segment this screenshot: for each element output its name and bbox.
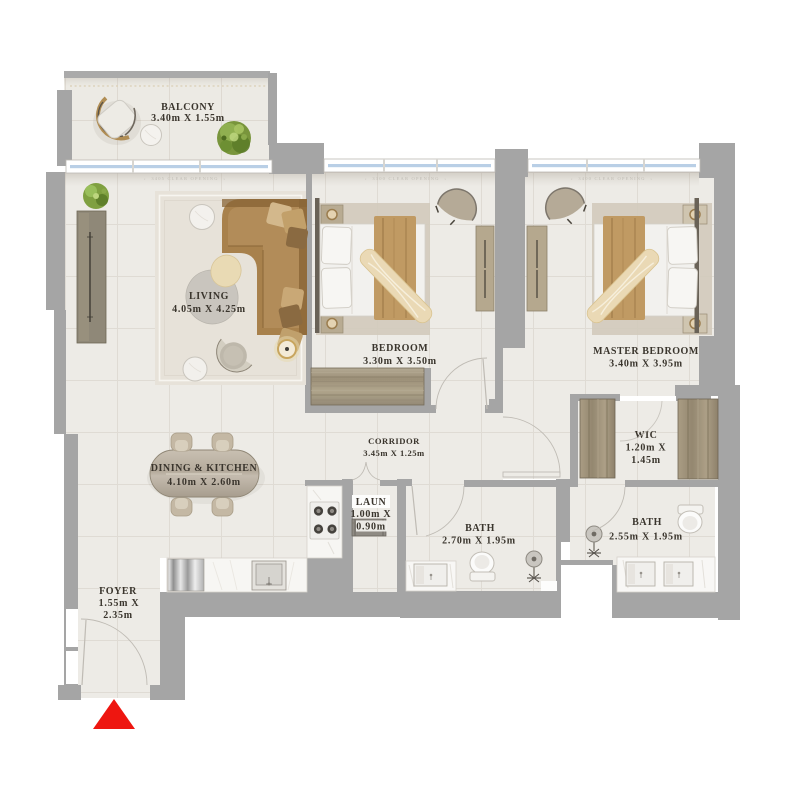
svg-text:BATH: BATH — [465, 523, 495, 534]
svg-text:BEDROOM: BEDROOM — [372, 343, 429, 354]
svg-text:CORRIDOR: CORRIDOR — [368, 436, 420, 446]
svg-text:2.70m X 1.95m: 2.70m X 1.95m — [442, 536, 516, 547]
svg-text:1.20m X: 1.20m X — [626, 443, 667, 454]
svg-text:4.10m X 2.60m: 4.10m X 2.60m — [167, 477, 241, 488]
svg-text:3.40m X 3.95m: 3.40m X 3.95m — [609, 359, 683, 370]
svg-text:‹ 3405 CLEAR OPENING ›: ‹ 3405 CLEAR OPENING › — [144, 176, 226, 181]
svg-text:LIVING: LIVING — [189, 291, 229, 302]
svg-text:MASTER BEDROOM: MASTER BEDROOM — [593, 346, 699, 357]
svg-text:FOYER: FOYER — [99, 586, 137, 597]
svg-text:2.55m X 1.95m: 2.55m X 1.95m — [609, 532, 683, 543]
svg-text:1.55m X: 1.55m X — [99, 598, 140, 609]
svg-text:BATH: BATH — [632, 517, 662, 528]
svg-text:‹ 3400 CLEAR OPENING ›: ‹ 3400 CLEAR OPENING › — [571, 176, 653, 181]
svg-text:1.00m X: 1.00m X — [351, 509, 392, 520]
svg-text:DINING & KITCHEN: DINING & KITCHEN — [151, 463, 258, 474]
svg-text:1.45m: 1.45m — [631, 455, 661, 466]
svg-text:0.90m: 0.90m — [356, 522, 386, 533]
svg-text:BALCONY: BALCONY — [161, 102, 215, 113]
svg-text:3.45m X 1.25m: 3.45m X 1.25m — [363, 448, 425, 458]
svg-text:4.05m X 4.25m: 4.05m X 4.25m — [172, 304, 246, 315]
svg-text:3.40m X 1.55m: 3.40m X 1.55m — [151, 113, 225, 124]
svg-text:2.35m: 2.35m — [103, 610, 133, 621]
svg-text:3.30m X 3.50m: 3.30m X 3.50m — [363, 356, 437, 367]
svg-text:‹ 3300 CLEAR OPENING ›: ‹ 3300 CLEAR OPENING › — [365, 176, 447, 181]
svg-text:LAUN: LAUN — [356, 497, 387, 508]
